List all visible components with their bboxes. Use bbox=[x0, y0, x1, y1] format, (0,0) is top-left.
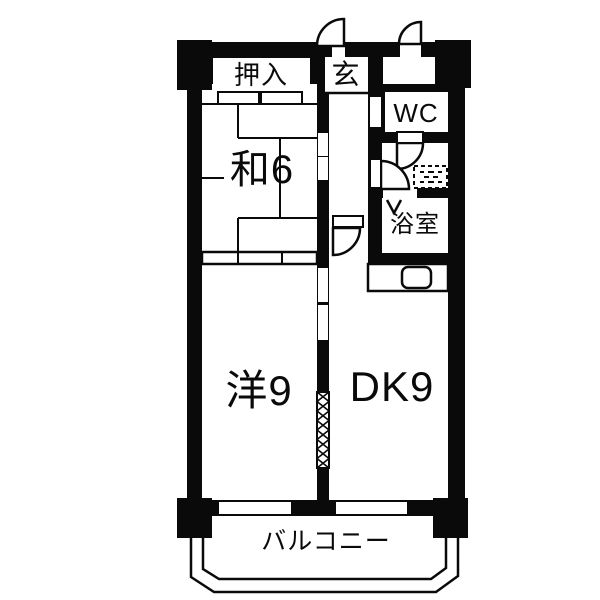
dk-door-leaf bbox=[333, 216, 363, 227]
label-western-room: 洋9 bbox=[225, 370, 292, 412]
oshiire-door-lines bbox=[218, 92, 302, 104]
label-oshiire: 押入 bbox=[234, 62, 288, 88]
service-door-swing-icon bbox=[399, 22, 421, 44]
floor-plan: 押入 玄 WC 和6 浴室 洋9 DK9 バルコニー bbox=[0, 0, 600, 600]
label-washitsu: 和6 bbox=[230, 150, 294, 190]
label-balcony: バルコニー bbox=[261, 530, 391, 555]
fusuma-band bbox=[202, 252, 317, 264]
plan-overlay bbox=[0, 0, 600, 600]
washing-machine-icon bbox=[414, 166, 447, 188]
wc-door-swing-icon bbox=[397, 143, 423, 169]
washroom-door-leaf bbox=[370, 159, 381, 188]
label-bathroom: 浴室 bbox=[390, 213, 440, 237]
dk-door-swing-icon bbox=[333, 228, 360, 255]
label-genkan: 玄 bbox=[331, 61, 360, 89]
label-dining-kitchen: DK9 bbox=[350, 366, 435, 408]
front-door-swing-icon bbox=[317, 19, 344, 46]
accordion-door-icon bbox=[317, 392, 329, 468]
wc-door-leaf bbox=[397, 132, 423, 143]
label-wc: WC bbox=[393, 100, 438, 126]
sink-icon bbox=[402, 267, 431, 288]
